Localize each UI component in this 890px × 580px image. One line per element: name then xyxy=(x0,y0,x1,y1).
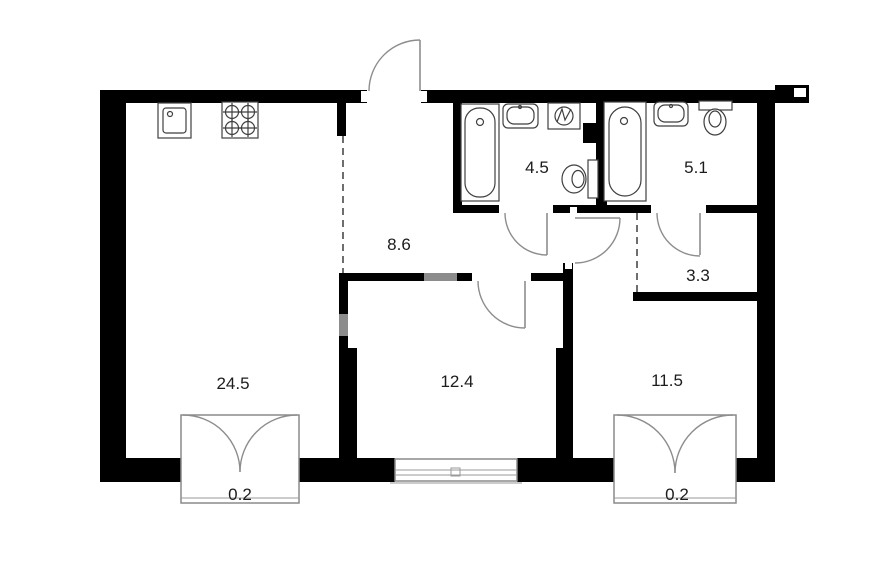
floor-plan: 24.5 8.6 4.5 5.1 3.3 12.4 11.5 0.2 0.2 xyxy=(0,0,890,580)
kitchen-sink xyxy=(158,103,191,138)
entrance-door xyxy=(369,40,420,91)
room-label-hallway: 8.6 xyxy=(387,235,411,254)
window-room-1 xyxy=(390,459,522,483)
door-bathroom-1 xyxy=(505,213,547,255)
wash-basin-1 xyxy=(503,104,538,128)
bathtub-1 xyxy=(461,104,499,201)
floor-plan-svg: 24.5 8.6 4.5 5.1 3.3 12.4 11.5 0.2 0.2 xyxy=(0,0,890,580)
door-corridor xyxy=(575,218,620,263)
door-bathroom-2 xyxy=(657,213,700,256)
toilet-2 xyxy=(699,101,732,135)
room-label-room-2: 11.5 xyxy=(651,371,683,390)
toilet-1 xyxy=(562,160,598,198)
room-label-balcony-2: 0.2 xyxy=(665,485,689,504)
cooktop xyxy=(222,102,258,138)
room-label-balcony-1: 0.2 xyxy=(228,485,252,504)
room-label-hall-nook: 3.3 xyxy=(686,266,710,285)
room-label-bathroom-2: 5.1 xyxy=(684,158,708,177)
door-room-1 xyxy=(478,281,525,328)
bathtub-2 xyxy=(604,102,646,201)
room-label-living-kitchen: 24.5 xyxy=(216,374,249,393)
room-label-room-1: 12.4 xyxy=(440,372,473,391)
room-label-bathroom-1: 4.5 xyxy=(525,158,549,177)
wash-basin-2 xyxy=(654,102,688,126)
washing-machine xyxy=(548,103,580,129)
